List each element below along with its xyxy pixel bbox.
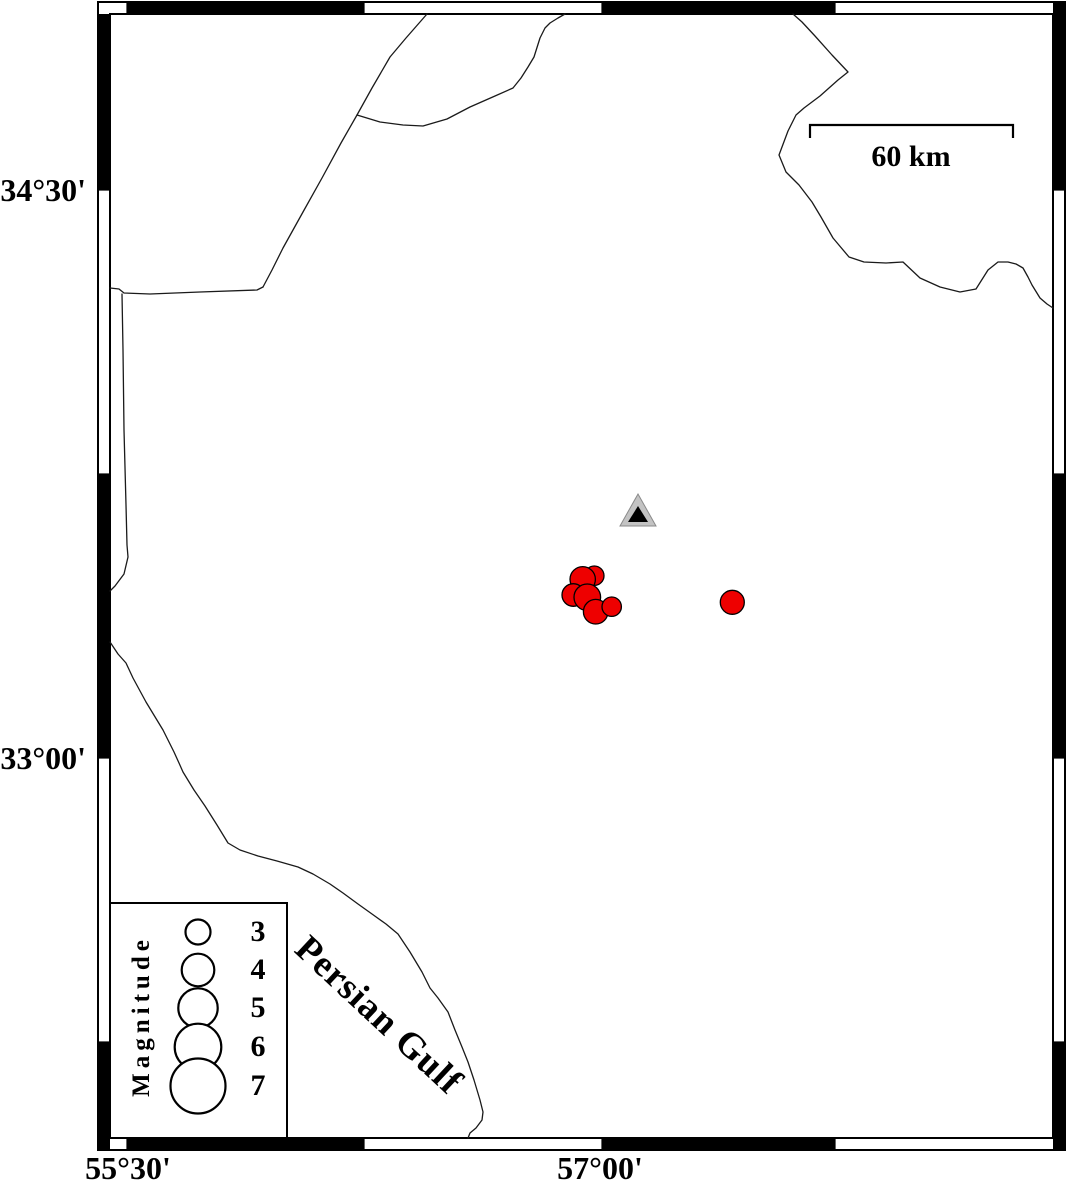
scale-bar-label: 60 km xyxy=(831,141,991,173)
frame-segment-right xyxy=(1053,1042,1065,1150)
scale-bar xyxy=(810,125,1013,138)
frame-segment-left xyxy=(98,474,110,758)
frame-segment-right xyxy=(1053,2,1065,190)
border-west-horizontal xyxy=(110,287,263,294)
border-northeast xyxy=(263,14,427,287)
earthquake-marker xyxy=(720,590,744,614)
earthquake-marker xyxy=(602,597,621,616)
border-west-vertical xyxy=(110,294,128,591)
legend-magnitude-value: 3 xyxy=(236,917,280,947)
legend-title-magnitude: Magnitude xyxy=(129,935,155,1097)
legend-magnitude-value: 7 xyxy=(236,1071,280,1101)
frame-segment-left xyxy=(98,14,110,190)
legend-magnitude-value: 5 xyxy=(236,993,280,1023)
lat-tick-label-34-30: 34°30' xyxy=(0,174,86,208)
legend-magnitude-circle xyxy=(186,920,211,945)
frame-segment-bottom xyxy=(602,1138,835,1150)
map-canvas xyxy=(0,0,1066,1187)
frame-segment-top xyxy=(127,2,364,14)
legend-magnitude-value: 6 xyxy=(236,1032,280,1062)
frame-segment-right xyxy=(1053,474,1065,758)
frame-segment-top xyxy=(602,2,835,14)
border-wedge xyxy=(357,14,565,126)
lat-tick-label-33-00: 33°00' xyxy=(0,742,86,776)
legend-magnitude-circle xyxy=(178,988,217,1027)
frame-segment-left xyxy=(98,1042,110,1150)
legend-magnitude-circle xyxy=(171,1059,226,1114)
legend-magnitude-circle xyxy=(182,954,215,987)
seismicity-map-figure: 34°30' 33°00' 55°30' 57°00' 60 km Persia… xyxy=(0,0,1066,1187)
frame-segment-bottom xyxy=(127,1138,364,1150)
lon-tick-label-55-30: 55°30' xyxy=(48,1152,208,1186)
lon-tick-label-57-00: 57°00' xyxy=(520,1152,680,1186)
legend-magnitude-value: 4 xyxy=(236,955,280,985)
